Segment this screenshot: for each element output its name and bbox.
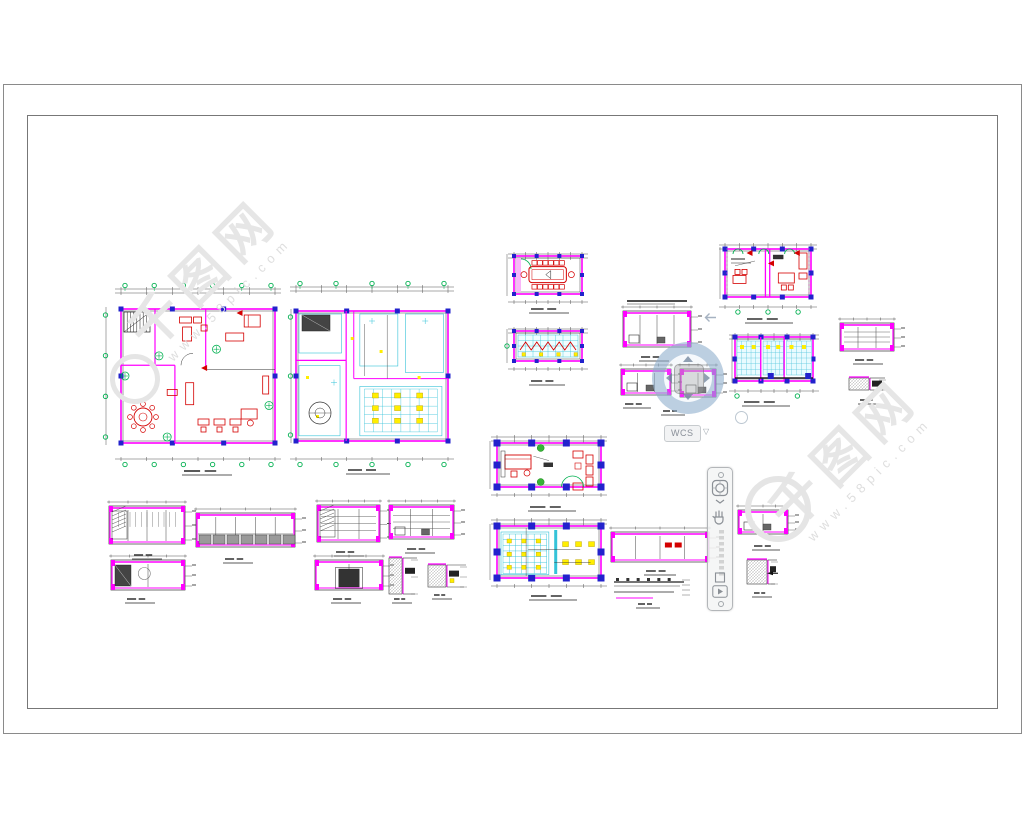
- detail-bc-drawing: [612, 576, 694, 604]
- pan-right-arrow-icon: [704, 373, 710, 383]
- drawing-caption: [221, 556, 255, 566]
- drawing-caption: [750, 590, 774, 600]
- navbar-grip-dot: [718, 601, 724, 607]
- plan-offices-drawing: [717, 239, 819, 315]
- pan-cursor-arrow-icon: [702, 312, 718, 323]
- cad-canvas[interactable]: [0, 0, 1024, 819]
- wcs-dropdown-icon[interactable]: ▽: [703, 427, 709, 436]
- navigation-bar: [707, 467, 733, 611]
- wcs-selector-button[interactable]: WCS: [664, 425, 701, 442]
- elev-bm1-drawing: [313, 499, 384, 550]
- elev-tr-drawing: [836, 317, 898, 359]
- elev-bl2-drawing: [192, 507, 299, 555]
- plan-bays-drawing: [729, 329, 819, 399]
- drawing-caption: [329, 596, 363, 606]
- drawing-caption: [634, 601, 662, 611]
- drawing-caption: [180, 468, 234, 478]
- wheel-center-handle[interactable]: [674, 364, 704, 394]
- drawing-caption: [750, 543, 782, 553]
- elev-bc-drawing: [607, 526, 713, 570]
- detail-r-drawing: [745, 556, 779, 590]
- drawing-caption: [743, 316, 795, 326]
- pan-up-arrow-icon: [683, 356, 693, 362]
- drawing-caption: [390, 596, 414, 606]
- drawing-caption: [851, 357, 885, 367]
- drawing-caption: [527, 593, 579, 603]
- drawing-label-line: [627, 299, 687, 305]
- elev-bl3-drawing: [107, 554, 189, 598]
- pan-down-arrow-icon: [683, 394, 693, 400]
- pan-left-arrow-icon: [666, 373, 672, 383]
- detail-bm1-drawing: [387, 554, 419, 600]
- drawing-caption: [430, 592, 454, 602]
- plan-c-drawing: [487, 431, 611, 503]
- navbar-grip-dot: [718, 472, 724, 478]
- elev-bm2-drawing: [385, 499, 458, 547]
- drawing-caption: [123, 596, 157, 606]
- detail-tr-drawing: [847, 374, 887, 396]
- room-conference-drawing: [504, 248, 588, 310]
- drawing-caption: [527, 378, 567, 388]
- plan-d-drawing: [487, 514, 611, 594]
- plan-b-drawing: [288, 281, 458, 467]
- drawing-caption: [856, 397, 882, 407]
- navigation-wheel-button[interactable]: [711, 479, 729, 497]
- elev-bl1-drawing: [105, 500, 189, 552]
- room-ceiling-drawing: [504, 323, 588, 377]
- elev-bm3-drawing: [311, 554, 387, 598]
- zoom-window-button[interactable]: [715, 572, 726, 583]
- wheel-hint-icon: [735, 411, 748, 424]
- elev-r-drawing: [734, 504, 792, 542]
- showmotion-button[interactable]: [712, 585, 728, 598]
- drawing-caption: [527, 306, 571, 316]
- detail-bm2-drawing: [426, 561, 468, 593]
- navbar-expand-chevron-icon[interactable]: [715, 499, 725, 504]
- drawing-caption: [621, 401, 653, 411]
- plan-a-drawing: [103, 283, 287, 467]
- pan-button[interactable]: [710, 507, 730, 527]
- drawing-caption: [344, 467, 392, 477]
- steering-wheel-overlay[interactable]: [652, 342, 724, 414]
- drawing-caption: [740, 399, 792, 409]
- drawing-caption: [526, 504, 578, 514]
